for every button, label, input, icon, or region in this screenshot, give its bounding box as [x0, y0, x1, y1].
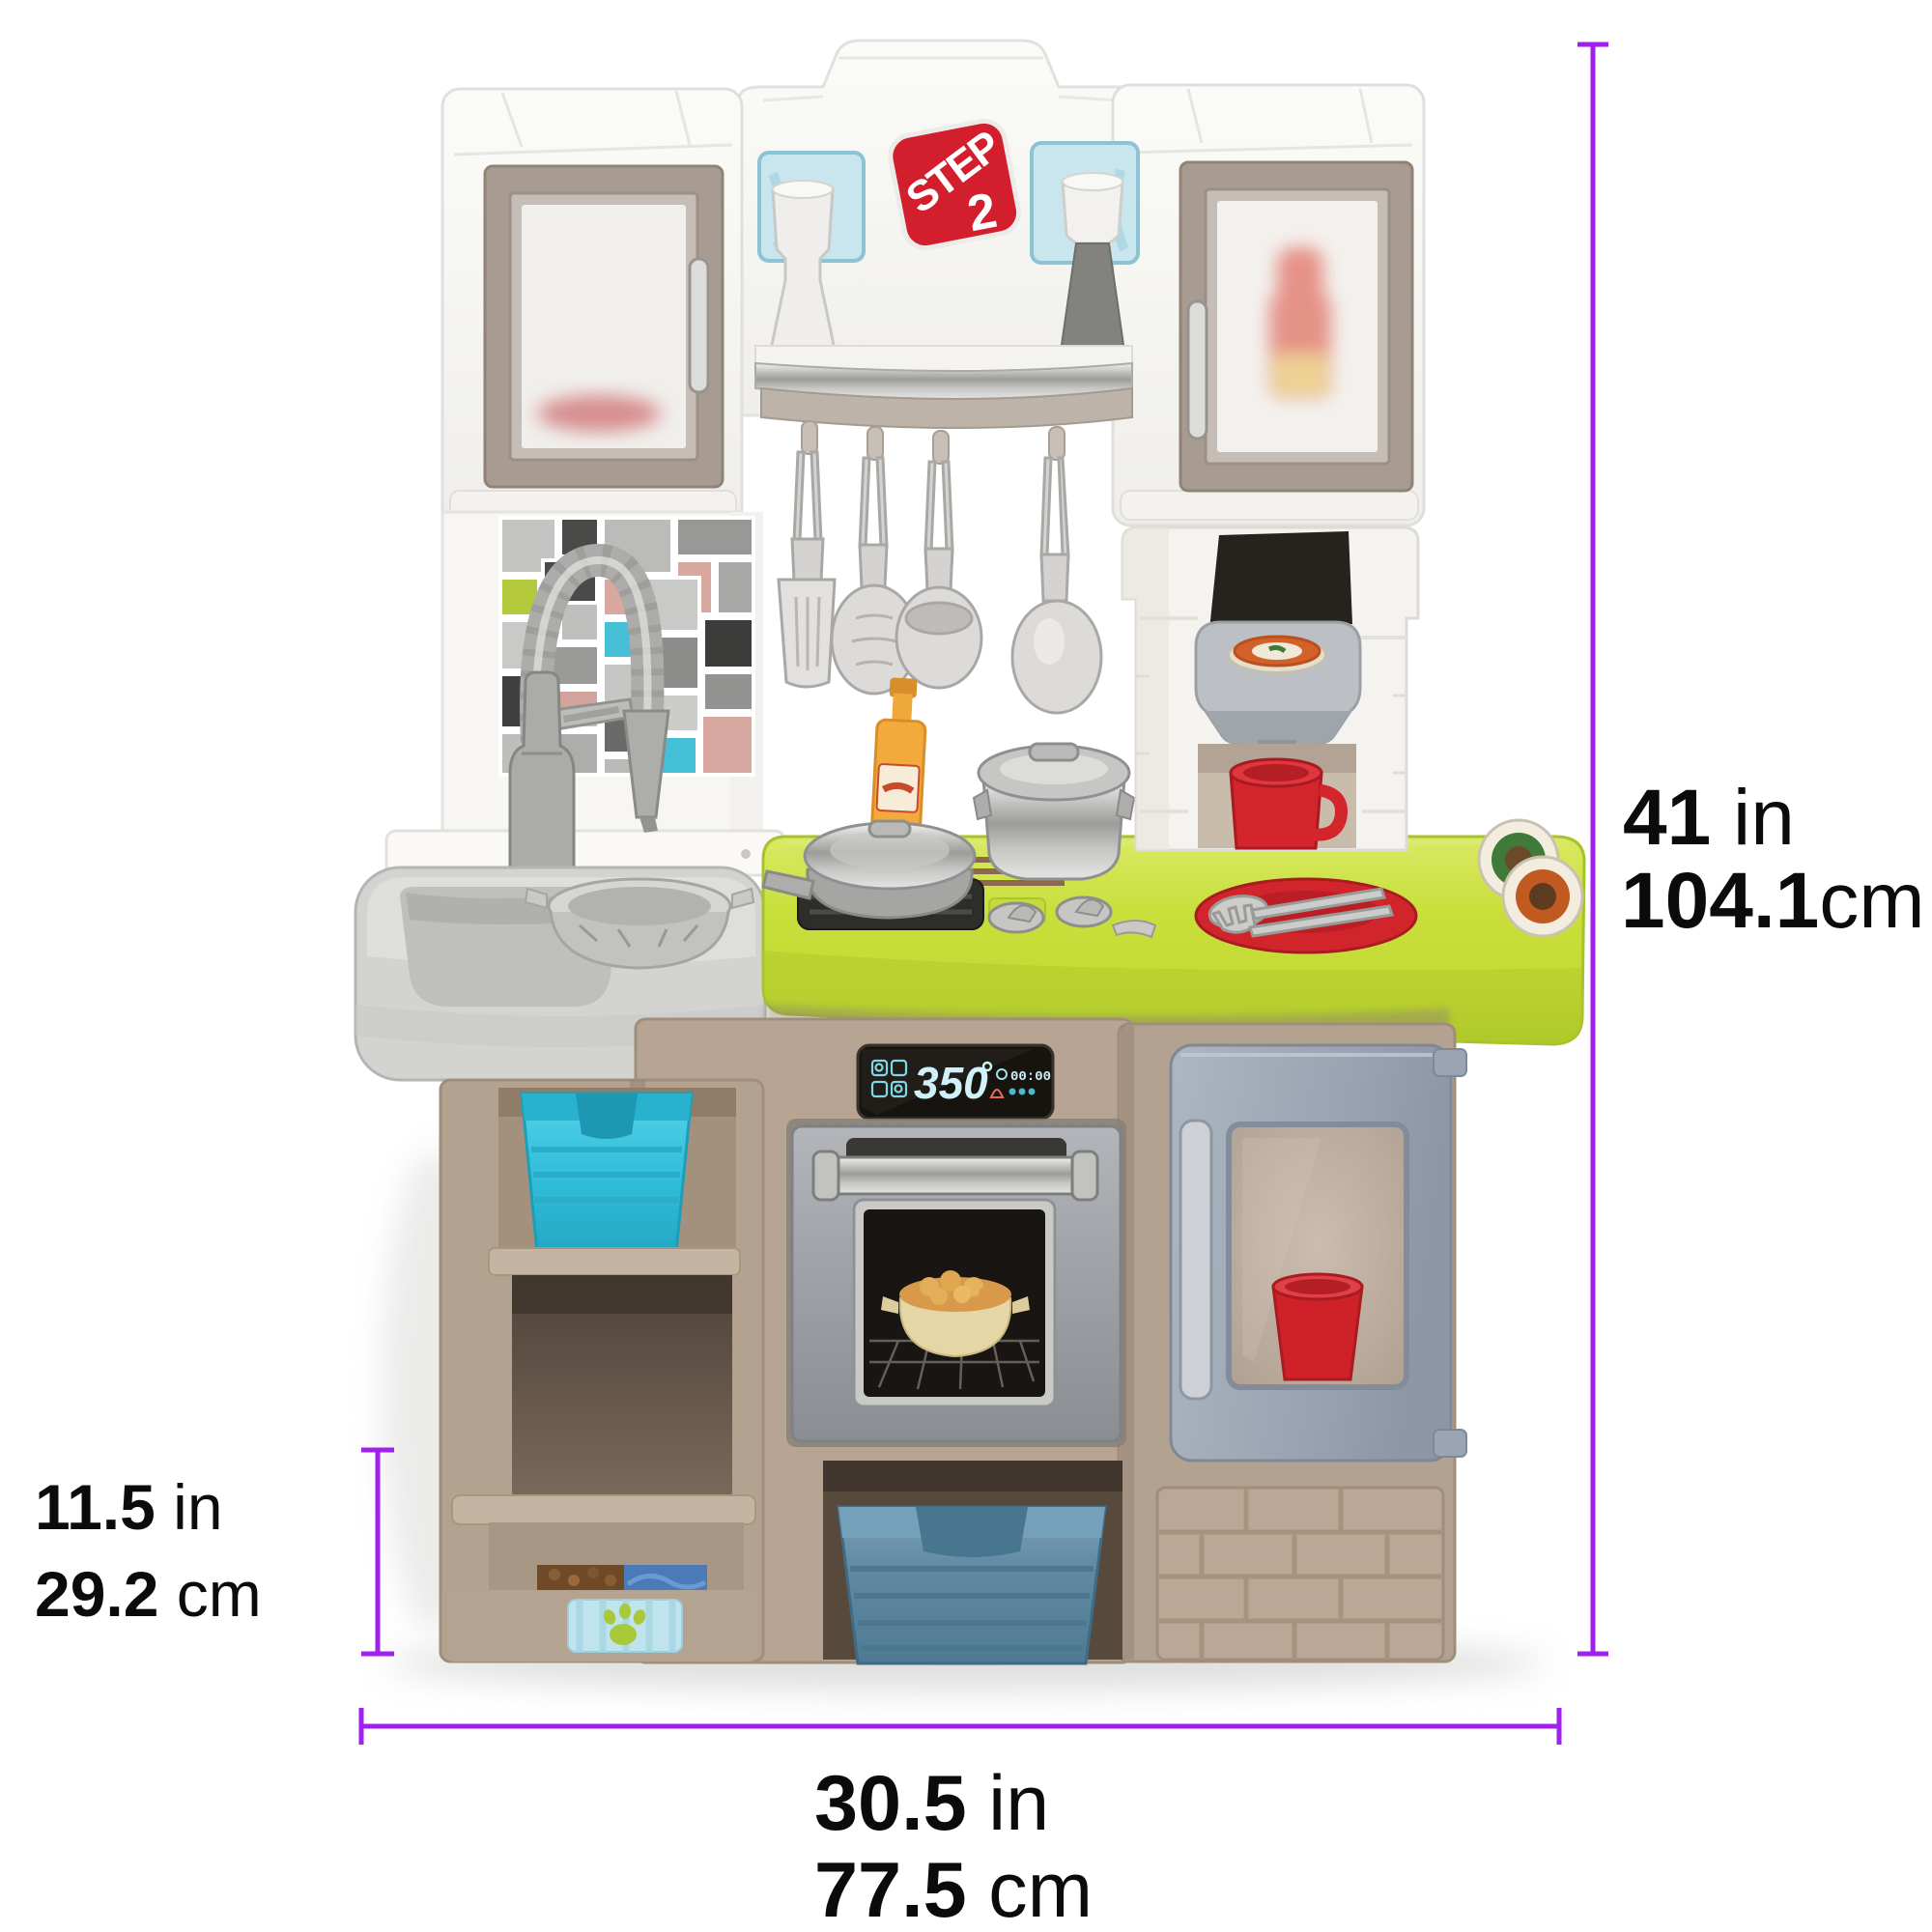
svg-text:77.5 cm: 77.5 cm: [814, 1847, 1093, 1932]
svg-text:29.2 cm: 29.2 cm: [35, 1558, 262, 1630]
svg-text:30.5 in: 30.5 in: [814, 1760, 1049, 1847]
svg-text:350: 350: [914, 1058, 988, 1108]
svg-text:41 in: 41 in: [1623, 774, 1795, 862]
svg-text:00:00: 00:00: [1010, 1069, 1051, 1085]
svg-text:104.1cm: 104.1cm: [1621, 857, 1925, 945]
svg-text:11.5 in: 11.5 in: [35, 1471, 223, 1543]
